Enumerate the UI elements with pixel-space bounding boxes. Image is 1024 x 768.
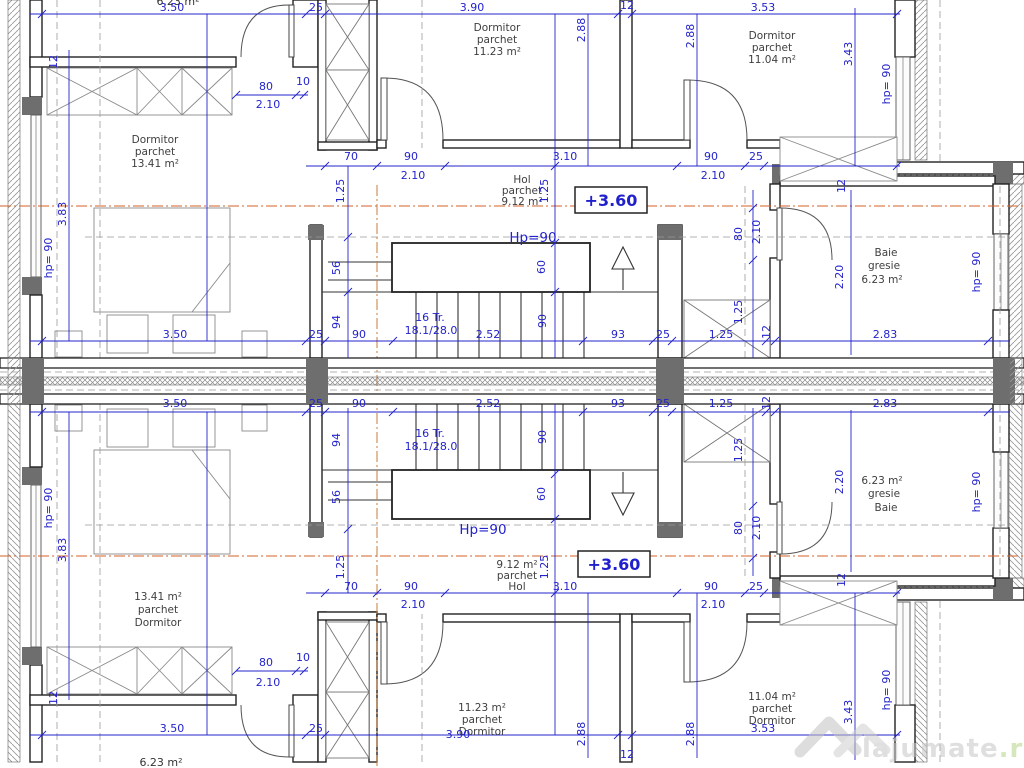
room-area: 11.04 m² xyxy=(748,54,796,66)
dim-label: 3.90 xyxy=(446,728,471,741)
dim-label: 12 xyxy=(760,396,773,410)
dim-label: 3.50 xyxy=(160,1,185,14)
dim-label: 94 xyxy=(330,433,343,447)
room-name: Dormitor xyxy=(749,30,796,42)
dim-label: 25 xyxy=(309,397,323,410)
dim-label: 12 xyxy=(835,179,848,193)
door-leaf xyxy=(289,5,294,57)
wall xyxy=(318,0,326,150)
dim-label: 3.50 xyxy=(163,328,188,341)
dim-label: 80 xyxy=(259,80,273,93)
wardrobe-right xyxy=(780,137,897,181)
dim-label: 93 xyxy=(611,328,625,341)
dim-label: 12 xyxy=(760,325,773,339)
dim-label: 2.10 xyxy=(401,169,426,182)
dim-label: 25 xyxy=(309,1,323,14)
door-swing-arc xyxy=(241,5,289,57)
dim-label: 25 xyxy=(309,328,323,341)
dim-label: 12 xyxy=(835,573,848,587)
dim-label: 2.10 xyxy=(750,220,763,245)
room-finish: parchet xyxy=(135,146,175,158)
watermark-brand: lajumate.ro xyxy=(862,734,1024,764)
dim-label: 2.52 xyxy=(476,328,501,341)
dim-label: 25 xyxy=(656,397,670,410)
dim-label: 3.43 xyxy=(842,42,855,67)
wall xyxy=(993,184,1009,234)
wall xyxy=(369,0,377,150)
dim-label: 90 xyxy=(404,150,418,163)
dim-label: 1.25 xyxy=(538,555,551,580)
dim-label: 1.25 xyxy=(709,328,734,341)
party-wall-band xyxy=(0,358,1024,404)
dim-label: 2.20 xyxy=(833,265,846,290)
wall xyxy=(318,142,377,150)
wall xyxy=(30,0,42,97)
dim-label: 1.25 xyxy=(334,555,347,580)
room-area: 6.23 m² xyxy=(861,475,902,487)
dim-label: 2.88 xyxy=(684,24,697,49)
window-sill-height-label: hp= 90 xyxy=(42,238,55,279)
dim-label: 25 xyxy=(656,328,670,341)
dim-label: 56 xyxy=(330,261,343,275)
room-name: Dormitor xyxy=(132,134,179,146)
room-area: 13.41 m² xyxy=(131,158,179,170)
stair-treads-note: 16 Tr. xyxy=(415,311,445,324)
dim-label: 70 xyxy=(344,150,358,163)
wall-block xyxy=(308,225,324,240)
dim-label: 56 xyxy=(330,490,343,504)
wall xyxy=(632,140,690,148)
stair-direction-arrow xyxy=(612,247,634,269)
wardrobe xyxy=(47,68,232,115)
floor-plan-page: 6.23 m² 3.50 25 3.90 12 3.53 2.88 2.88 3… xyxy=(0,0,1024,768)
elevation-marker: +3.60 xyxy=(575,187,647,213)
window-sill-height-label: hp= 90 xyxy=(970,252,983,293)
party-wall-hatch xyxy=(0,377,1024,385)
dim-label: 2.10 xyxy=(256,676,281,689)
dim-label: 94 xyxy=(330,315,343,329)
room-area: 13.41 m² xyxy=(134,591,182,603)
door-swing-arc xyxy=(687,80,747,140)
dim-label: 1.25 xyxy=(538,179,551,204)
dim-label: 25 xyxy=(749,580,763,593)
dim-label: 2.10 xyxy=(401,598,426,611)
dim-label: 2.10 xyxy=(701,169,726,182)
elevation-value: +3.60 xyxy=(585,191,638,210)
room-finish: parchet xyxy=(752,703,792,715)
room-finish: parchet xyxy=(477,34,517,46)
wall xyxy=(747,140,780,148)
dim-label: 3.83 xyxy=(56,202,69,227)
stair-riser-note: 18.1/28.0 xyxy=(405,440,458,453)
elevation-value: +3.60 xyxy=(588,555,641,574)
dim-label: 90 xyxy=(704,580,718,593)
dim-label: 2.10 xyxy=(256,98,281,111)
dim-label: 80 xyxy=(259,656,273,669)
room-finish: parchet xyxy=(462,714,502,726)
room-finish: gresie xyxy=(868,260,900,272)
stair-landing xyxy=(392,243,590,292)
dim-label: 25 xyxy=(309,722,323,735)
dim-label: 3.10 xyxy=(553,580,578,593)
wall xyxy=(620,0,632,148)
window-sill-height-label: hp= 90 xyxy=(970,472,983,513)
wall xyxy=(770,258,780,358)
bath-insulation-hatch xyxy=(1009,184,1022,358)
room-finish: gresie xyxy=(868,488,900,500)
dim-label: 2.10 xyxy=(701,598,726,611)
door-swing-arc xyxy=(780,208,832,260)
window-sill-height-label: hp= 90 xyxy=(880,670,893,711)
door-leaf xyxy=(381,78,387,140)
dim-label: 90 xyxy=(536,314,549,328)
room-name: Hol xyxy=(508,581,525,593)
wall-block xyxy=(22,358,44,404)
stair-parapet-label: Hp=90 xyxy=(459,522,506,538)
dim-label: 1.25 xyxy=(334,179,347,204)
room-finish: parchet xyxy=(752,42,792,54)
room-area: 9.12 m² xyxy=(501,196,542,208)
room-finish: parchet xyxy=(138,604,178,616)
stair-treads-note: 16 Tr. xyxy=(415,427,445,440)
dim-label: 3.53 xyxy=(751,1,776,14)
wall xyxy=(377,140,386,148)
wall xyxy=(30,57,236,67)
dim-label: 12 xyxy=(620,748,634,761)
dim-label: 10 xyxy=(296,651,310,664)
dim-label: 3.50 xyxy=(160,722,185,735)
room-name: Dormitor xyxy=(135,617,182,629)
dim-label: 3.10 xyxy=(553,150,578,163)
shaft-x-boxes xyxy=(326,4,369,140)
door-swing-arc xyxy=(384,78,443,140)
dim-label: 90 xyxy=(704,150,718,163)
dim-label: 2.88 xyxy=(575,18,588,43)
dim-label: 2.88 xyxy=(575,722,588,747)
right-insulation-hatch xyxy=(915,0,927,160)
dim-label: 60 xyxy=(535,487,548,501)
dim-label: 93 xyxy=(611,397,625,410)
dim-label: 3.90 xyxy=(460,1,485,14)
wall-block xyxy=(658,225,682,240)
room-area: 11.23 m² xyxy=(473,46,521,58)
window-sill-height-label: hp= 90 xyxy=(880,64,893,105)
dim-label: 90 xyxy=(404,580,418,593)
dim-label: 3.50 xyxy=(163,397,188,410)
dim-label: 3.83 xyxy=(56,538,69,563)
dim-label: 80 xyxy=(732,227,745,241)
wall xyxy=(443,140,620,148)
left-insulation-hatch xyxy=(8,0,20,358)
elevation-marker: +3.60 xyxy=(578,551,650,577)
room-name: Dormitor xyxy=(474,22,521,34)
window-sill-block xyxy=(22,97,42,115)
window-sill-height-label: hp= 90 xyxy=(42,488,55,529)
dim-label: 90 xyxy=(536,430,549,444)
door-leaf xyxy=(777,208,782,260)
floor-plan-canvas: 6.23 m² 3.50 25 3.90 12 3.53 2.88 2.88 3… xyxy=(0,0,1024,768)
wall xyxy=(30,295,42,358)
dim-label: 2.83 xyxy=(873,397,898,410)
dim-label: 1.25 xyxy=(732,300,745,325)
wall-block xyxy=(993,162,1013,184)
dim-label: 2.20 xyxy=(833,470,846,495)
stair-riser-note: 18.1/28.0 xyxy=(405,324,458,337)
dim-label: 3.43 xyxy=(842,700,855,725)
dim-label: 2.88 xyxy=(684,722,697,747)
dim-label: 2.83 xyxy=(873,328,898,341)
room-area-partial: 6.23 m² xyxy=(139,756,182,768)
room-name: Baie xyxy=(874,247,897,259)
dim-label: 12 xyxy=(47,55,60,69)
dim-label: 12 xyxy=(620,0,634,12)
dim-label: 1.25 xyxy=(709,397,734,410)
bed xyxy=(55,208,267,357)
dim-label: 90 xyxy=(352,397,366,410)
dim-label: 25 xyxy=(749,150,763,163)
room-name: Baie xyxy=(874,502,897,514)
dim-label: 70 xyxy=(344,580,358,593)
room-area: 6.23 m² xyxy=(861,274,902,286)
dim-label: 3.53 xyxy=(751,722,776,735)
dim-label: 2.10 xyxy=(750,516,763,541)
dim-label: 12 xyxy=(47,691,60,705)
window-sill-block xyxy=(22,277,42,295)
room-area: 11.23 m² xyxy=(458,702,506,714)
door-leaf xyxy=(684,80,690,140)
wall xyxy=(895,0,915,57)
dim-label: 90 xyxy=(352,328,366,341)
dim-label: 60 xyxy=(535,260,548,274)
dim-label: 1.25 xyxy=(732,438,745,463)
wall xyxy=(993,310,1009,358)
stair-parapet-label: Hp=90 xyxy=(509,230,556,246)
dim-label: 10 xyxy=(296,75,310,88)
dim-label: 2.52 xyxy=(476,397,501,410)
dim-label: 80 xyxy=(732,521,745,535)
room-area: 11.04 m² xyxy=(748,691,796,703)
